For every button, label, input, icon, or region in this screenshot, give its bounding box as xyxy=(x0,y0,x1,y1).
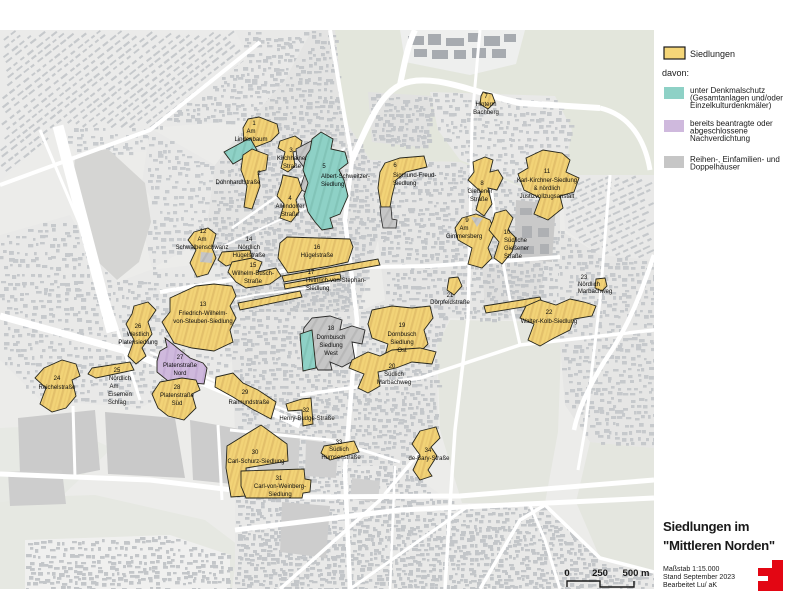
svg-text:Am: Am xyxy=(247,129,256,135)
svg-text:Bachberg: Bachberg xyxy=(473,110,499,116)
svg-text:Marbachweg: Marbachweg xyxy=(578,289,612,295)
svg-text:Platensiedlung: Platensiedlung xyxy=(118,340,157,346)
svg-text:Dörpfeldstraße: Dörpfeldstraße xyxy=(430,300,470,306)
svg-text:& nördlich: & nördlich xyxy=(534,186,561,192)
svg-text:16: 16 xyxy=(314,245,321,251)
svg-text:22: 22 xyxy=(546,310,553,316)
svg-text:de-Bary-Straße: de-Bary-Straße xyxy=(408,456,450,462)
svg-text:Walter-Kolb-Siedlung: Walter-Kolb-Siedlung xyxy=(521,319,577,325)
svg-text:von-Steuben-Siedlung: von-Steuben-Siedlung xyxy=(173,319,232,325)
svg-text:Kirchhainer: Kirchhainer xyxy=(277,156,307,162)
svg-text:15: 15 xyxy=(250,263,257,269)
svg-text:24: 24 xyxy=(54,376,61,382)
svg-text:Siedlungen: Siedlungen xyxy=(690,49,735,59)
svg-text:Am: Am xyxy=(110,384,119,390)
svg-text:Westlich: Westlich xyxy=(127,332,150,338)
svg-text:Nördlich: Nördlich xyxy=(578,282,600,288)
svg-text:33: 33 xyxy=(336,440,343,446)
svg-text:Karl-Kirchner-Siedlung: Karl-Kirchner-Siedlung xyxy=(517,178,577,184)
svg-text:Gimmersberg: Gimmersberg xyxy=(446,234,482,240)
svg-text:19: 19 xyxy=(399,323,406,329)
svg-text:Süd: Süd xyxy=(172,401,183,407)
svg-text:Siedlung: Siedlung xyxy=(390,340,413,346)
svg-text:Dornbusch: Dornbusch xyxy=(387,332,416,338)
svg-text:Schlag: Schlag xyxy=(108,400,126,406)
svg-text:davon:: davon: xyxy=(662,68,689,78)
svg-text:Platenstraße: Platenstraße xyxy=(163,363,198,369)
svg-text:"Mittleren Norden": "Mittleren Norden" xyxy=(663,538,775,553)
svg-text:Albert-Schweitzer-: Albert-Schweitzer- xyxy=(321,174,370,180)
svg-text:Siedlungen im: Siedlungen im xyxy=(663,519,749,534)
svg-text:Henry-Budge-Straße: Henry-Budge-Straße xyxy=(279,416,335,422)
svg-text:Einzelkulturdenkmäler): Einzelkulturdenkmäler) xyxy=(690,101,772,110)
svg-text:Reichelstraße: Reichelstraße xyxy=(38,385,76,391)
svg-text:Carl-von-Weinberg-: Carl-von-Weinberg- xyxy=(254,484,306,490)
svg-text:Straße: Straße xyxy=(283,164,302,170)
svg-text:Straße: Straße xyxy=(244,279,263,285)
svg-text:Bearbeitet Lu/ aK: Bearbeitet Lu/ aK xyxy=(663,582,717,589)
svg-text:West: West xyxy=(324,351,338,357)
svg-text:Humsenstraße: Humsenstraße xyxy=(321,455,361,461)
svg-text:250: 250 xyxy=(592,568,608,579)
svg-text:500 m: 500 m xyxy=(623,568,650,579)
svg-text:Wilhelm-Busch-: Wilhelm-Busch- xyxy=(232,271,274,277)
svg-text:Heinrich-von-Stephan-: Heinrich-von-Stephan- xyxy=(306,278,366,284)
svg-text:Platenstraße: Platenstraße xyxy=(160,393,195,399)
svg-text:Sigmund-Freud-: Sigmund-Freud- xyxy=(393,173,436,179)
svg-text:Siedlung: Siedlung xyxy=(268,492,291,498)
svg-text:Südliche: Südliche xyxy=(504,238,528,244)
svg-text:Hügelstraße: Hügelstraße xyxy=(301,253,334,259)
svg-text:Nördlich: Nördlich xyxy=(109,376,131,382)
svg-text:21: 21 xyxy=(447,293,454,299)
svg-text:27: 27 xyxy=(177,355,184,361)
svg-text:Straße: Straße xyxy=(504,254,523,260)
svg-text:Am: Am xyxy=(198,237,207,243)
svg-text:Hügelstraße: Hügelstraße xyxy=(233,253,266,259)
svg-text:30: 30 xyxy=(252,450,259,456)
svg-text:Schwalbenschwanz: Schwalbenschwanz xyxy=(176,245,229,251)
svg-text:11: 11 xyxy=(544,169,551,175)
svg-text:Carl-Schurz-Siedlung: Carl-Schurz-Siedlung xyxy=(227,459,284,465)
svg-text:Hinterm: Hinterm xyxy=(475,102,496,108)
svg-text:Siedlung: Siedlung xyxy=(393,181,416,187)
svg-text:Südlich: Südlich xyxy=(384,372,404,378)
svg-text:26: 26 xyxy=(135,324,142,330)
svg-text:Maßstab 1:15.000: Maßstab 1:15.000 xyxy=(663,566,720,573)
svg-text:29: 29 xyxy=(242,390,249,396)
svg-text:31: 31 xyxy=(276,476,283,482)
svg-text:Stand September 2023: Stand September 2023 xyxy=(663,574,735,581)
svg-text:Ost: Ost xyxy=(397,348,407,354)
svg-text:Justizvollzugsanstalt: Justizvollzugsanstalt xyxy=(520,194,575,200)
svg-text:10: 10 xyxy=(504,230,511,236)
svg-text:Eisernen: Eisernen xyxy=(108,392,132,398)
svg-text:28: 28 xyxy=(174,385,181,391)
svg-text:20: 20 xyxy=(389,364,396,370)
svg-text:Raimundstraße: Raimundstraße xyxy=(228,400,270,406)
svg-text:23: 23 xyxy=(581,275,588,281)
svg-text:Gießener: Gießener xyxy=(504,246,529,252)
svg-text:Siedlung: Siedlung xyxy=(306,286,329,292)
svg-text:14: 14 xyxy=(246,237,253,243)
svg-text:12: 12 xyxy=(200,229,207,235)
svg-text:Siedlung: Siedlung xyxy=(321,182,344,188)
svg-text:Siedlung: Siedlung xyxy=(319,343,342,349)
svg-text:18: 18 xyxy=(328,326,335,332)
svg-text:Gießener: Gießener xyxy=(467,189,492,195)
svg-text:13: 13 xyxy=(200,302,207,308)
svg-text:Dohnhardtstraße: Dohnhardtstraße xyxy=(215,180,261,186)
svg-text:Lindenbaum: Lindenbaum xyxy=(234,137,267,143)
svg-text:Friedrich-Wilhelm-: Friedrich-Wilhelm- xyxy=(179,311,228,317)
svg-text:Nördlich: Nördlich xyxy=(238,245,260,251)
svg-text:Nachverdichtung: Nachverdichtung xyxy=(690,134,750,143)
svg-text:Doppelhäuser: Doppelhäuser xyxy=(690,163,740,172)
svg-text:Südlich: Südlich xyxy=(329,447,349,453)
svg-text:Allendorfer: Allendorfer xyxy=(275,204,304,210)
svg-text:Straße: Straße xyxy=(281,212,300,218)
svg-text:Am: Am xyxy=(460,226,469,232)
svg-text:34: 34 xyxy=(425,448,432,454)
svg-text:Straße: Straße xyxy=(470,197,489,203)
svg-text:0: 0 xyxy=(564,568,569,579)
svg-text:25: 25 xyxy=(114,368,121,374)
svg-text:17: 17 xyxy=(308,270,315,276)
svg-text:Dornbusch: Dornbusch xyxy=(316,335,345,341)
svg-text:Marbachweg: Marbachweg xyxy=(377,380,411,386)
svg-text:Nord: Nord xyxy=(173,371,186,377)
svg-text:32: 32 xyxy=(303,408,310,414)
